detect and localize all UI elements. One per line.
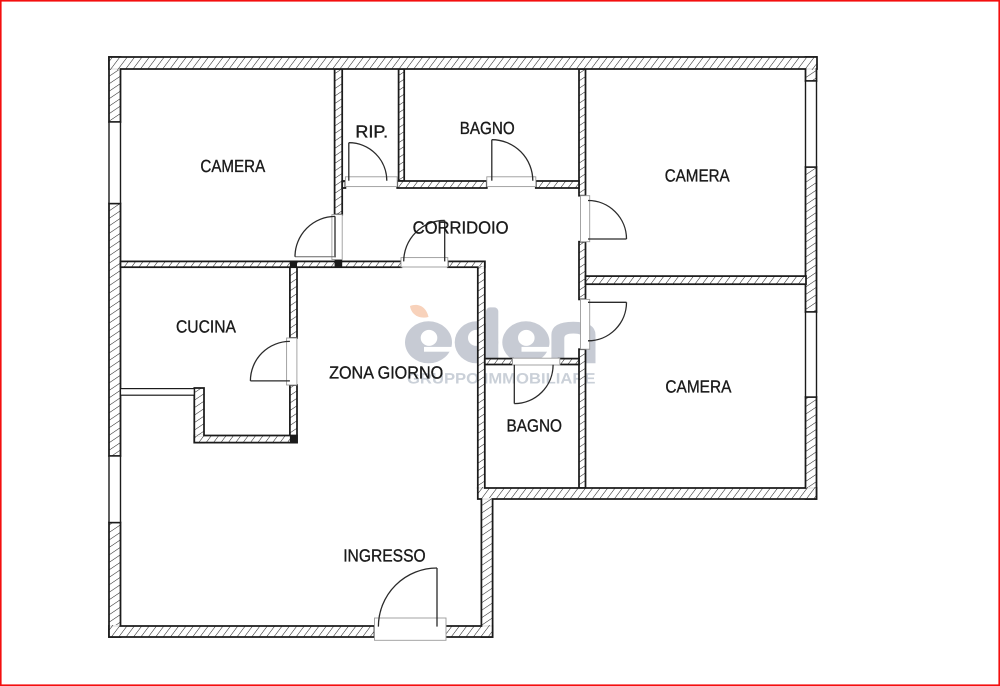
svg-text:CAMERA: CAMERA — [665, 376, 731, 396]
svg-text:BAGNO: BAGNO — [460, 118, 515, 138]
svg-text:RIP.: RIP. — [355, 121, 388, 141]
svg-text:INGRESSO: INGRESSO — [343, 546, 426, 566]
svg-text:CORRIDOIO: CORRIDOIO — [413, 218, 509, 238]
svg-text:CUCINA: CUCINA — [176, 317, 236, 337]
svg-text:CAMERA: CAMERA — [200, 156, 265, 176]
svg-text:CAMERA: CAMERA — [665, 165, 730, 185]
svg-text:BAGNO: BAGNO — [507, 416, 563, 436]
svg-text:ZONA GIORNO: ZONA GIORNO — [329, 362, 443, 382]
